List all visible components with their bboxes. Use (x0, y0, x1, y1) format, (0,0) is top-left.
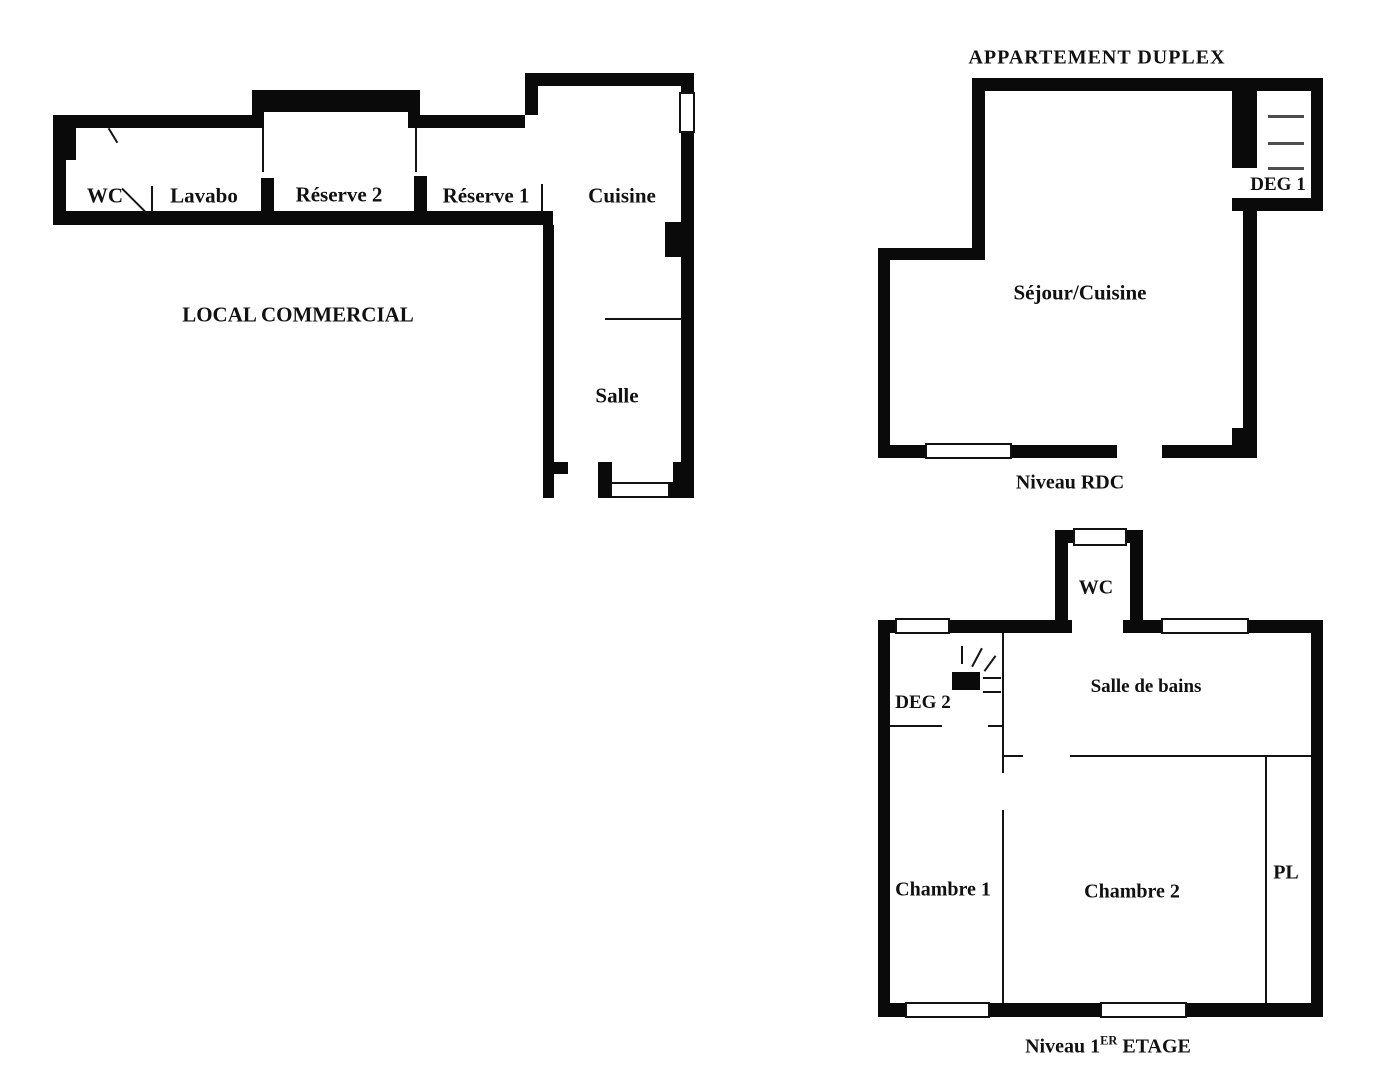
partition-line (1002, 810, 1004, 1003)
room-label-sejour-cuisine: Séjour/Cuisine (1013, 281, 1146, 306)
room-label-lavabo: Lavabo (170, 184, 238, 209)
window-symbol (895, 618, 950, 634)
partition-line (605, 318, 682, 320)
partition-line (1265, 755, 1267, 1003)
wall-segment (252, 90, 420, 112)
plan-title-appartement-duplex: APPARTEMENT DUPLEX (968, 47, 1225, 70)
room-label-wc: WC (87, 184, 123, 209)
wall-segment (1232, 198, 1323, 211)
caption-suffix: ETAGE (1122, 1035, 1191, 1057)
wall-segment (1311, 78, 1323, 211)
partition-line (541, 184, 543, 212)
wall-segment (543, 225, 554, 498)
floorplan-page: WC Lavabo Réserve 2 Réserve 1 Cuisine LO… (0, 0, 1392, 1080)
partition-line (988, 725, 1003, 727)
wall-segment (878, 620, 890, 1017)
room-label-salle-de-bains: Salle de bains (1091, 676, 1202, 698)
plan-title-local-commercial: LOCAL COMMERCIAL (182, 303, 414, 328)
room-label-chambre-2: Chambre 2 (1084, 881, 1180, 904)
wall-segment (53, 211, 553, 225)
partition-line (890, 725, 942, 727)
stair-ray-line (971, 648, 983, 667)
window-symbol (1073, 528, 1127, 546)
window-symbol (925, 443, 1012, 459)
stair-tread-line (1268, 167, 1304, 170)
wall-segment (878, 248, 985, 260)
wall-segment (1232, 91, 1257, 168)
partition-line (262, 128, 264, 172)
wall-segment (1243, 211, 1257, 445)
level-caption-1er-etage: Niveau 1ERETAGE (1025, 1034, 1191, 1059)
stair-tread-line (1268, 115, 1304, 118)
wall-segment (1162, 445, 1257, 458)
room-label-deg-2: DEG 2 (895, 692, 950, 714)
door-jamb (554, 462, 568, 474)
wall-segment (878, 248, 890, 458)
wall-segment (681, 86, 694, 498)
partition-wall (261, 178, 274, 212)
partition-line (415, 128, 417, 172)
room-label-wc-etage: WC (1079, 577, 1113, 600)
wall-segment (1055, 530, 1068, 633)
wall-segment (668, 482, 694, 498)
room-label-cuisine: Cuisine (588, 184, 656, 209)
room-label-chambre-1: Chambre 1 (895, 879, 991, 902)
wall-segment (525, 73, 694, 86)
room-label-pl: PL (1273, 862, 1299, 885)
caption-superscript: ER (1100, 1034, 1117, 1048)
stair-tread-line (1268, 142, 1304, 145)
caption-prefix: Niveau 1 (1025, 1035, 1100, 1057)
room-label-reserve-2: Réserve 2 (296, 183, 383, 208)
window-symbol (905, 1002, 990, 1018)
room-label-deg-1: DEG 1 (1250, 174, 1305, 196)
partition-line (1002, 755, 1023, 757)
partition-wall (414, 176, 427, 212)
window-symbol (1161, 618, 1249, 634)
room-label-reserve-1: Réserve 1 (443, 184, 530, 209)
stair-tread-line (983, 677, 1001, 679)
room-label-salle: Salle (595, 384, 638, 409)
partition-line (1070, 755, 1311, 757)
wall-duct-protrusion (665, 222, 681, 257)
window-symbol (1100, 1002, 1187, 1018)
wall-segment (972, 78, 1323, 91)
level-caption-rdc: Niveau RDC (1016, 472, 1124, 495)
partition-line (1002, 633, 1004, 773)
door-swing-line (108, 128, 118, 144)
wall-segment (408, 115, 525, 128)
stair-ray-line (961, 646, 963, 664)
window-symbol (679, 92, 695, 133)
stairs-symbol (952, 672, 980, 690)
stair-tread-line (983, 691, 1001, 693)
wall-segment (972, 91, 985, 260)
wall-segment (1130, 530, 1143, 633)
stair-ray-line (984, 655, 997, 672)
window-symbol (610, 482, 670, 498)
wall-segment (53, 115, 76, 160)
wall-segment (1311, 620, 1323, 1017)
wall-segment (252, 112, 264, 128)
wall-segment (53, 115, 257, 128)
partition-line (151, 186, 153, 212)
